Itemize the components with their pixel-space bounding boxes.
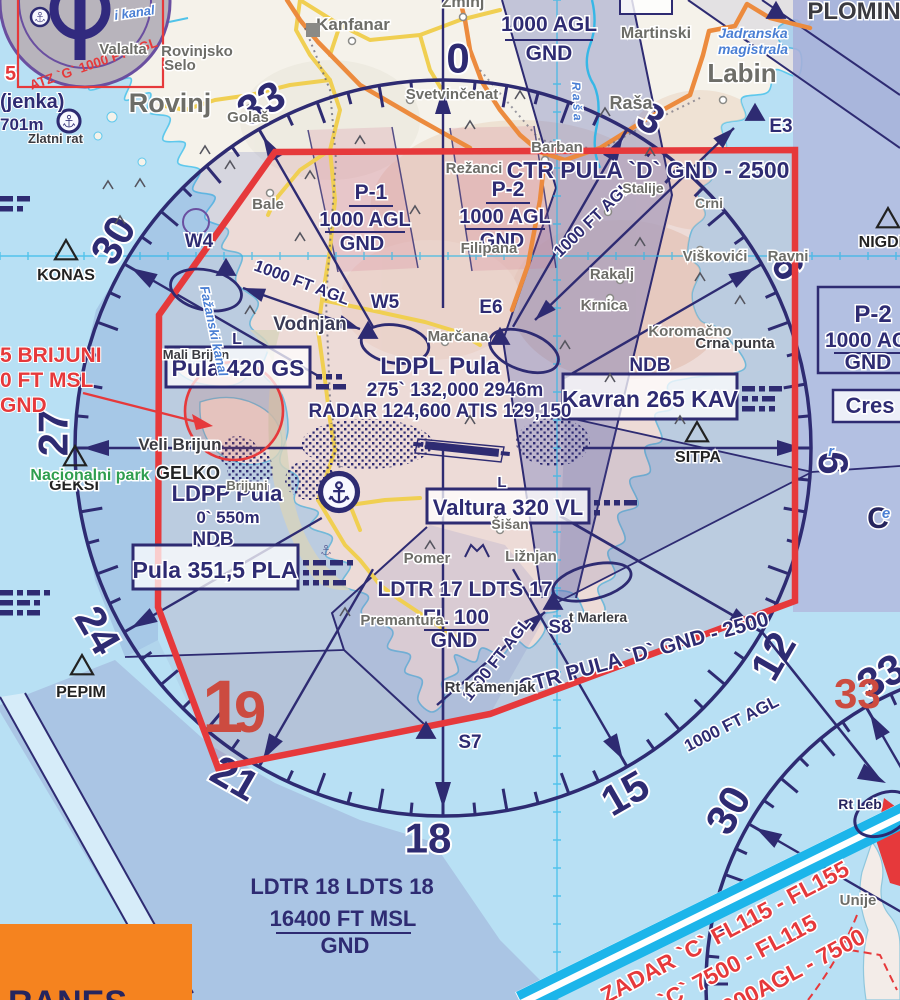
svg-text:Golaš: Golaš <box>227 109 269 126</box>
svg-text:magistrala: magistrala <box>718 41 788 57</box>
svg-text:Ravni: Ravni <box>768 248 809 265</box>
svg-text:Martinski: Martinski <box>621 25 691 42</box>
svg-text:L: L <box>232 331 242 348</box>
svg-text:GND: GND <box>0 394 47 417</box>
svg-text:5: 5 <box>5 63 16 85</box>
svg-text:Crna punta: Crna punta <box>695 335 775 352</box>
svg-text:Brijuni: Brijuni <box>226 478 267 493</box>
svg-text:0` 550m: 0` 550m <box>196 508 259 527</box>
svg-text:33: 33 <box>834 670 881 717</box>
svg-text:1000 AGL: 1000 AGL <box>459 206 551 228</box>
svg-text:GND: GND <box>845 351 892 374</box>
svg-text:KONAS: KONAS <box>37 267 95 284</box>
svg-text:Selo: Selo <box>164 57 196 74</box>
svg-text:R a š a: R a š a <box>569 81 585 121</box>
svg-text:16400 FT MSL: 16400 FT MSL <box>270 906 417 931</box>
svg-text:Valalta: Valalta <box>99 41 147 58</box>
svg-text:NDB: NDB <box>629 355 670 376</box>
svg-text:NDB: NDB <box>192 529 233 550</box>
svg-text:9: 9 <box>234 680 266 745</box>
svg-text:Zlatni rat: Zlatni rat <box>28 131 84 146</box>
svg-text:E3: E3 <box>769 116 792 137</box>
svg-text:P-1: P-1 <box>355 181 388 204</box>
svg-text:Bale: Bale <box>252 196 284 213</box>
svg-text:GELKO: GELKO <box>156 463 220 483</box>
svg-text:Režanci: Režanci <box>446 160 503 177</box>
svg-text:GND: GND <box>431 629 478 652</box>
svg-text:PEPIM: PEPIM <box>56 684 106 701</box>
svg-text:Crni: Crni <box>695 195 723 211</box>
svg-text:Cres: Cres <box>846 393 895 418</box>
svg-text:Premantura: Premantura <box>360 612 444 629</box>
svg-text:0: 0 <box>446 35 469 82</box>
svg-text:(jenka): (jenka) <box>0 91 64 113</box>
svg-text:Krnica: Krnica <box>581 297 628 314</box>
svg-text:18: 18 <box>405 815 452 862</box>
svg-text:GND: GND <box>526 42 573 65</box>
svg-text:GND: GND <box>321 933 370 958</box>
svg-text:Raša: Raša <box>609 93 653 113</box>
svg-text:Nacionalni park: Nacionalni park <box>30 467 149 484</box>
svg-text:Barban: Barban <box>531 139 583 156</box>
svg-text:GND: GND <box>340 233 384 255</box>
svg-text:5 BRIJUNI: 5 BRIJUNI <box>0 344 102 367</box>
svg-text:Rt Leb: Rt Leb <box>838 796 882 812</box>
svg-text:Unije: Unije <box>840 892 877 909</box>
svg-text:1000 AGL: 1000 AGL <box>319 209 411 231</box>
svg-text:NIGDE: NIGDE <box>859 234 900 251</box>
svg-text:LDPL Pula: LDPL Pula <box>380 353 500 380</box>
svg-text:W5: W5 <box>371 292 400 313</box>
svg-text:1000 AGL: 1000 AGL <box>825 329 900 352</box>
svg-text:RADAR 124,600 ATIS 129,150: RADAR 124,600 ATIS 129,150 <box>309 401 572 422</box>
svg-text:S7: S7 <box>458 732 481 753</box>
svg-text:Stalije: Stalije <box>622 180 663 196</box>
svg-text:Rt Kamenjak: Rt Kamenjak <box>445 679 537 696</box>
svg-text:0 FT MSL: 0 FT MSL <box>0 369 94 392</box>
svg-text:Marčana: Marčana <box>428 328 490 345</box>
svg-text:1000 AGL: 1000 AGL <box>501 13 597 36</box>
svg-text:Rakalj: Rakalj <box>590 266 634 283</box>
svg-text:275` 132,000 2946m: 275` 132,000 2946m <box>367 380 543 401</box>
svg-text:Jadranska: Jadranska <box>718 25 787 41</box>
svg-text:Pula 351,5 PLA: Pula 351,5 PLA <box>133 557 298 583</box>
svg-text:L: L <box>497 474 506 491</box>
svg-text:Ližnjan: Ližnjan <box>505 548 557 565</box>
svg-text:P-2: P-2 <box>854 301 891 328</box>
svg-text:Filipana: Filipana <box>461 240 518 257</box>
svg-text:Rovinj: Rovinj <box>129 88 212 118</box>
svg-text:PLOMIN: PLOMIN <box>807 0 900 25</box>
svg-text:Veli Brijun: Veli Brijun <box>138 435 221 454</box>
svg-text:LDTR 17 LDTS 17: LDTR 17 LDTS 17 <box>377 578 552 601</box>
svg-text:Vodnjan: Vodnjan <box>273 314 347 335</box>
svg-text:RANES: RANES <box>8 984 127 1000</box>
svg-text:LDTR 18 LDTS 18: LDTR 18 LDTS 18 <box>250 874 433 899</box>
svg-text:t Marlera: t Marlera <box>569 609 628 625</box>
svg-text:e: e <box>882 505 890 522</box>
svg-text:Pomer: Pomer <box>404 550 451 567</box>
svg-text:W4: W4 <box>185 231 214 252</box>
svg-text:Viškovići: Viškovići <box>683 248 748 265</box>
svg-text:Šišan: Šišan <box>491 515 528 532</box>
svg-text:Kanfanar: Kanfanar <box>316 15 390 34</box>
svg-text:Svetvinčenat: Svetvinčenat <box>406 86 499 103</box>
svg-text:SITPA: SITPA <box>675 449 721 466</box>
svg-text:Žminj: Žminj <box>442 0 485 11</box>
svg-text:Kavran 265 KAV: Kavran 265 KAV <box>562 386 739 412</box>
svg-text:Labin: Labin <box>707 58 776 88</box>
svg-text:E6: E6 <box>479 297 502 318</box>
